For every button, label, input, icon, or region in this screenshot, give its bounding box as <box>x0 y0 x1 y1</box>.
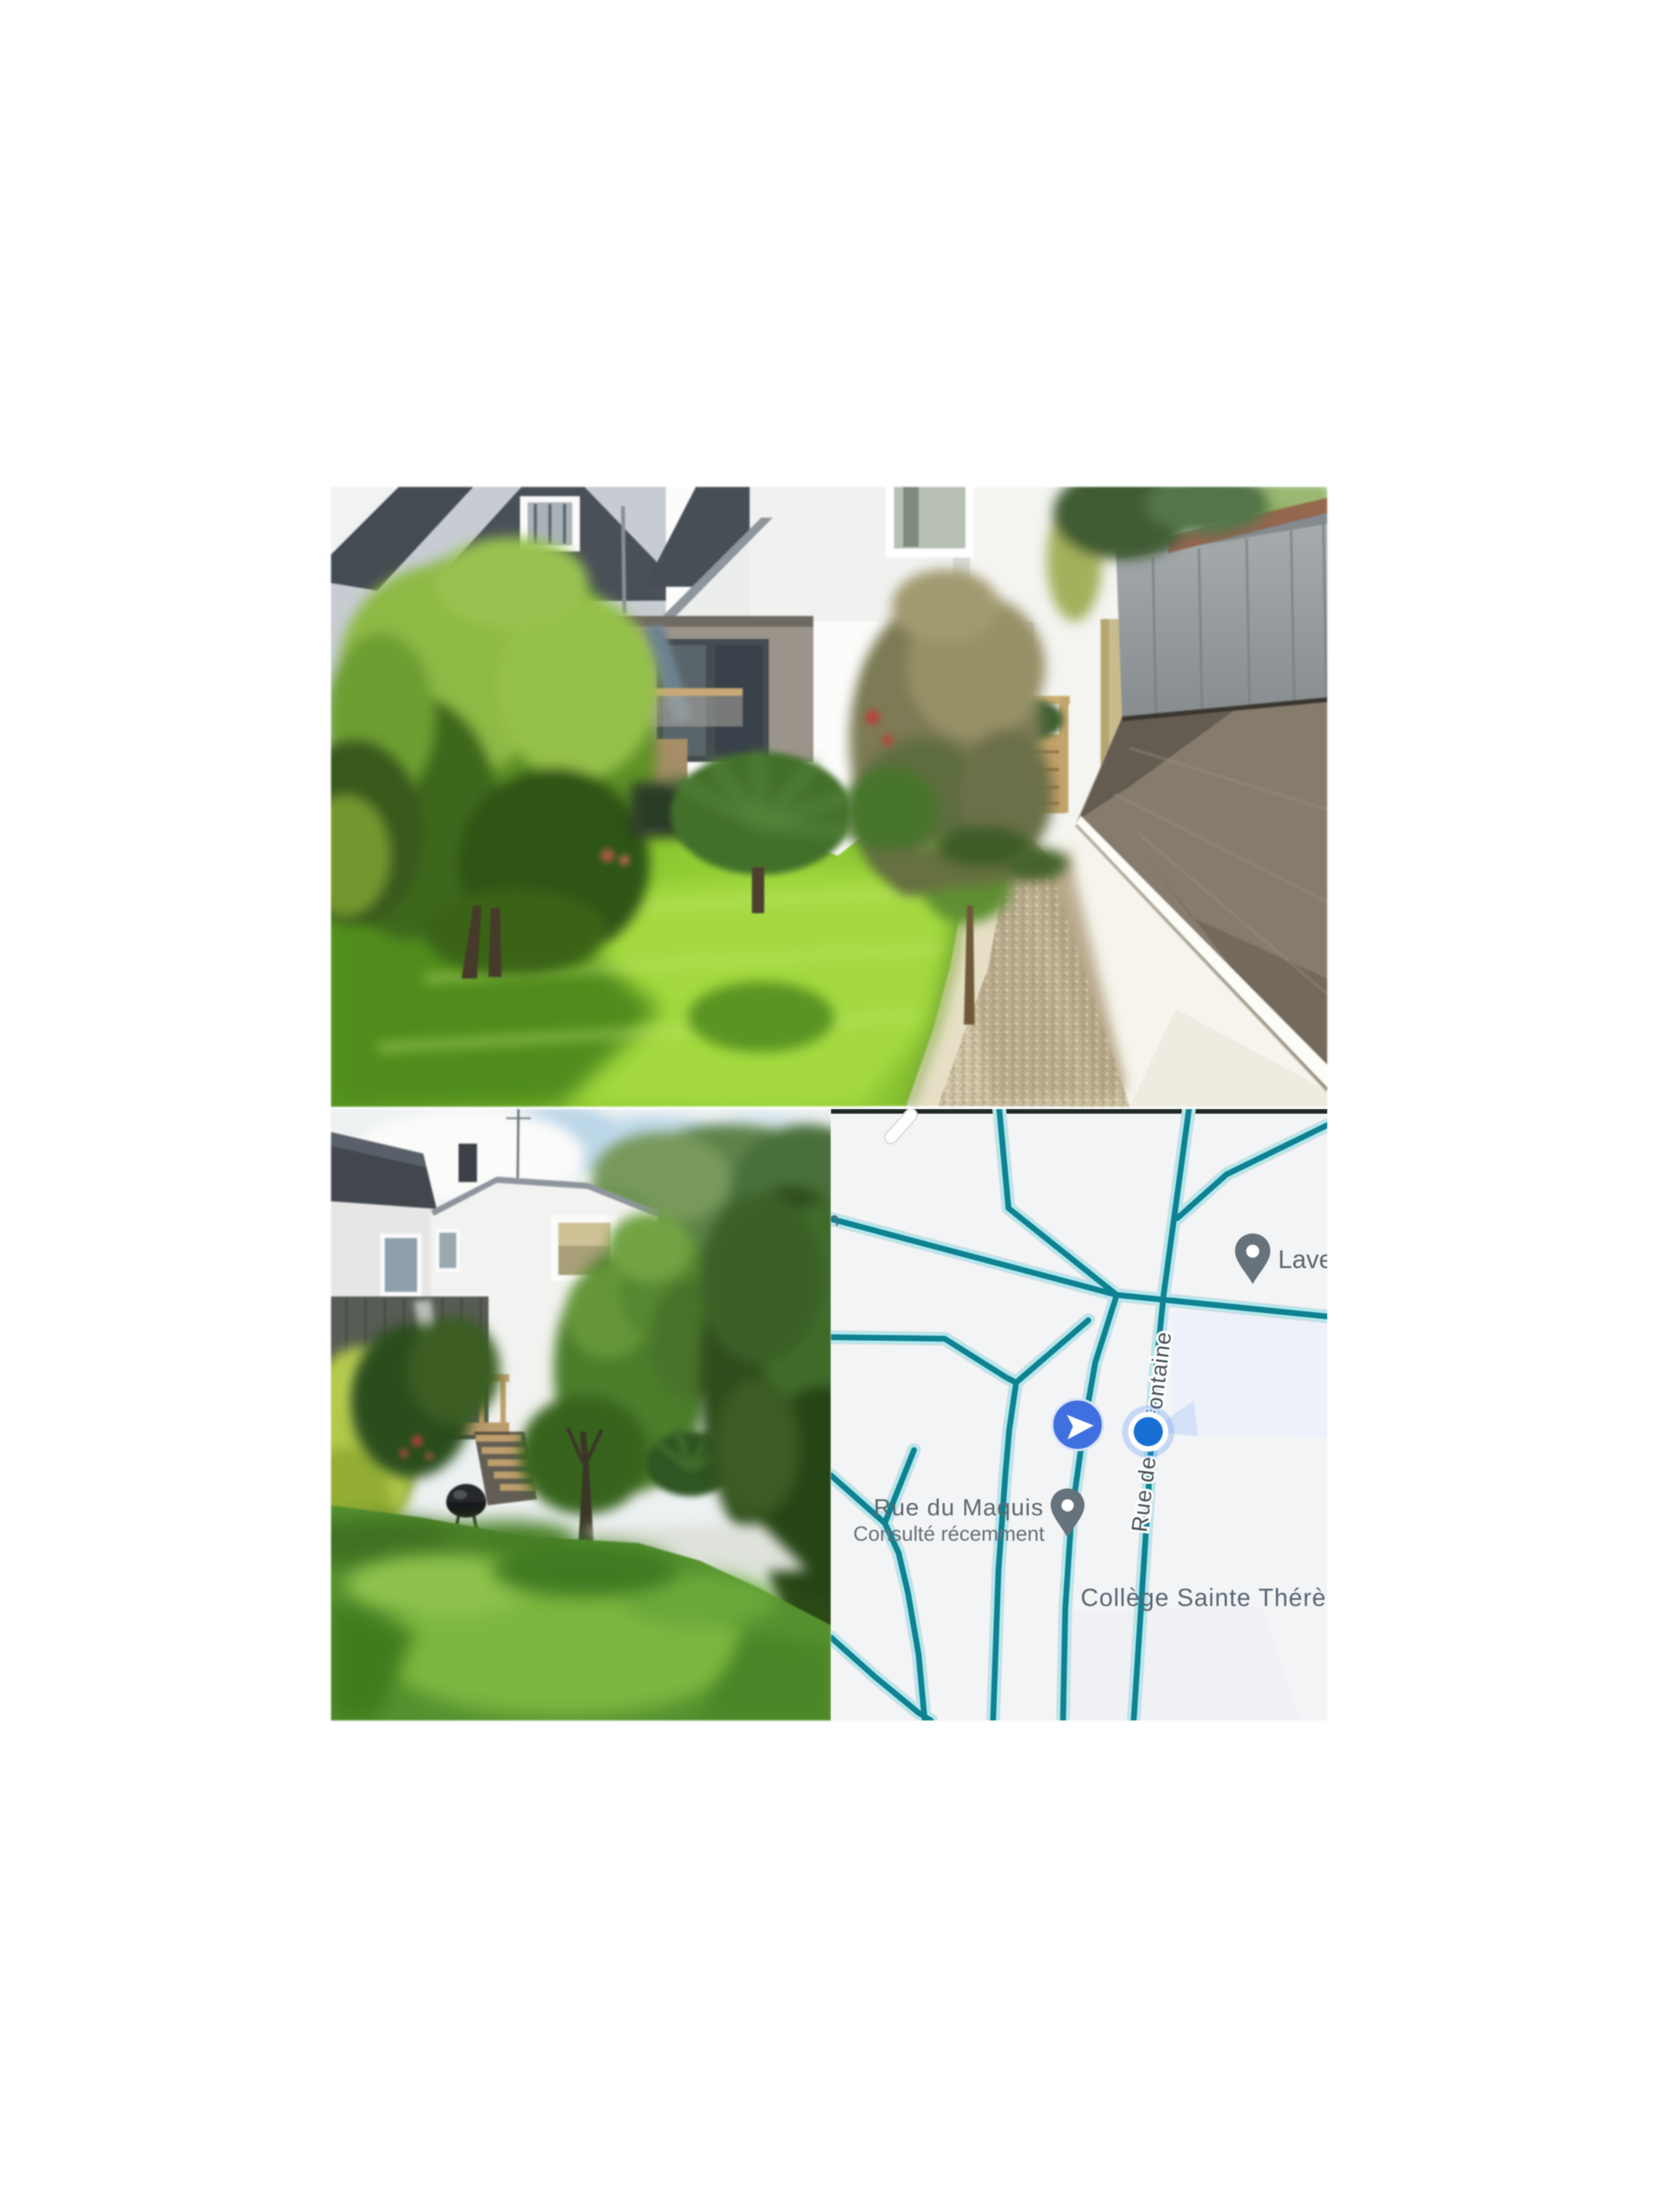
svg-text:Lave: Lave <box>1278 1245 1327 1273</box>
svg-text:n: n <box>831 1207 839 1230</box>
svg-text:Collège Sainte Thérèse: Collège Sainte Thérèse <box>1081 1584 1327 1611</box>
svg-text:Consulté récemment: Consulté récemment <box>853 1522 1045 1545</box>
svg-text:Rue du Maquis: Rue du Maquis <box>873 1494 1044 1521</box>
